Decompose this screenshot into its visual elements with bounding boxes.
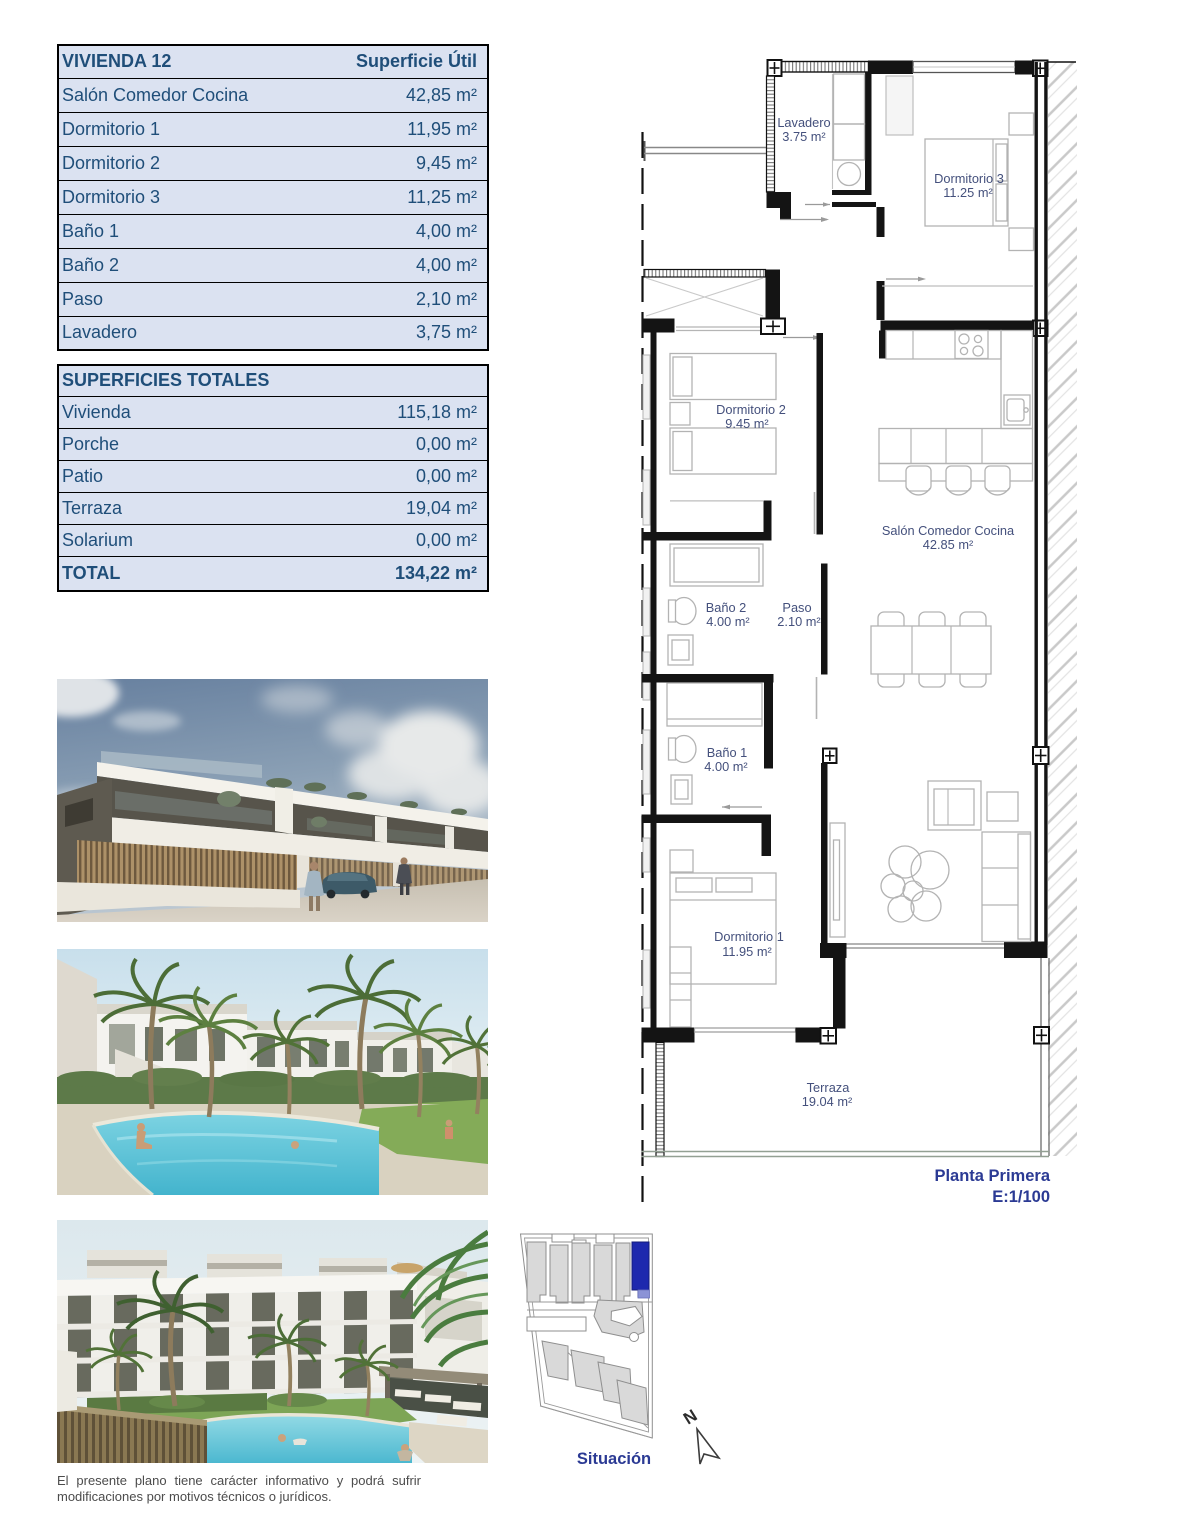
svg-text:2.10 m²: 2.10 m² <box>777 614 821 629</box>
svg-text:3.75 m²: 3.75 m² <box>782 129 826 144</box>
svg-text:4.00 m²: 4.00 m² <box>704 759 748 774</box>
svg-text:11.25 m²: 11.25 m² <box>943 185 993 200</box>
svg-text:11.95 m²: 11.95 m² <box>722 944 772 959</box>
svg-text:Dormitorio 1: Dormitorio 1 <box>714 929 784 944</box>
svg-text:Salón Comedor Cocina: Salón Comedor Cocina <box>882 523 1015 538</box>
svg-text:42.85 m²: 42.85 m² <box>923 537 974 552</box>
svg-text:Terraza: Terraza <box>807 1080 851 1095</box>
svg-text:19.04 m²: 19.04 m² <box>802 1094 853 1109</box>
svg-text:Dormitorio 2: Dormitorio 2 <box>716 402 786 417</box>
svg-text:4.00 m²: 4.00 m² <box>706 614 750 629</box>
svg-text:Paso: Paso <box>782 600 811 615</box>
svg-text:Dormitorio 3: Dormitorio 3 <box>934 171 1004 186</box>
svg-text:Lavadero: Lavadero <box>777 115 830 130</box>
svg-text:Baño 1: Baño 1 <box>707 745 748 760</box>
svg-text:Baño 2: Baño 2 <box>706 600 747 615</box>
svg-text:9.45 m²: 9.45 m² <box>725 416 769 431</box>
